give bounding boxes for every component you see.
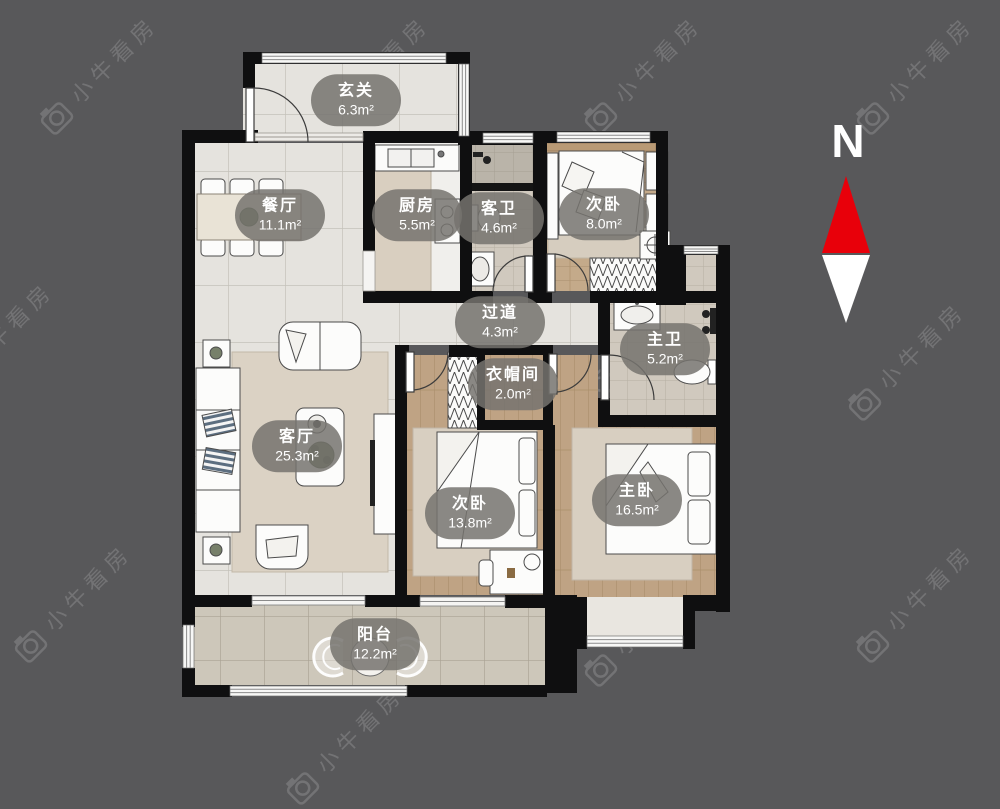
balcony-table [351, 638, 389, 676]
bay-window-floor [587, 597, 683, 636]
balcony-chair [314, 638, 343, 676]
compass-arrow [808, 118, 888, 328]
entry-floor [243, 55, 470, 137]
window [262, 53, 446, 63]
tv [370, 440, 375, 506]
window [557, 132, 650, 142]
balcony-furniture [314, 638, 426, 676]
guest-bath-shower-floor [472, 145, 533, 183]
window [459, 64, 469, 136]
compass: N [808, 118, 888, 328]
camera-logo-icon [279, 764, 324, 809]
compass-north-arrow [822, 176, 870, 253]
walkway-floor [553, 355, 598, 425]
corridor-floor [373, 303, 598, 345]
kitchen-opening [363, 251, 375, 291]
master-bedroom-furniture [606, 444, 716, 554]
desk [490, 550, 544, 594]
window [230, 686, 407, 696]
floorplan-drawing [0, 0, 1000, 750]
compass-south-arrow [822, 255, 870, 323]
floorplan-canvas: 小牛看房 小牛看房 小牛看房 小牛看房 小牛看房 小牛看房 小牛看房 小牛看房 … [0, 0, 1000, 750]
sliding-door [252, 596, 365, 605]
sliding-door [420, 597, 505, 606]
window [483, 133, 533, 143]
balcony-chair [397, 638, 426, 676]
entry-threshold [255, 133, 363, 141]
window [587, 636, 683, 647]
window [684, 246, 718, 254]
wardrobe [448, 352, 478, 428]
window [183, 625, 194, 668]
tv-cabinet [374, 414, 397, 534]
